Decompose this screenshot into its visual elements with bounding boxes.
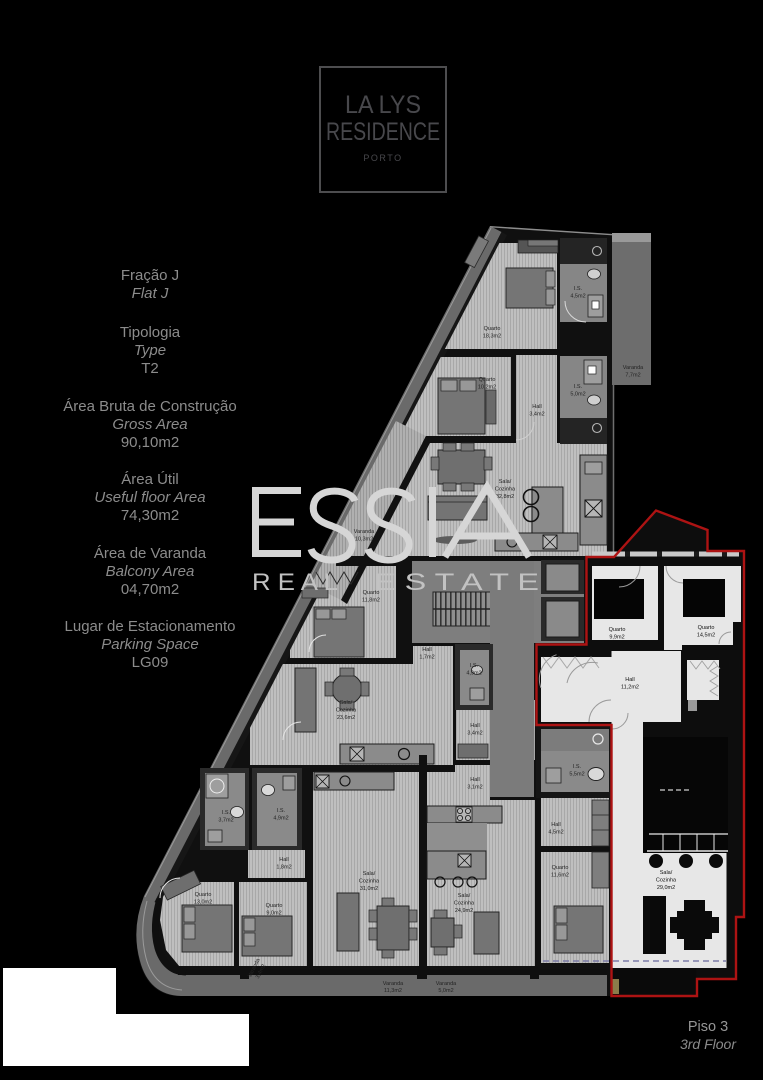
svg-text:Cozinha: Cozinha <box>495 487 516 493</box>
svg-text:4,9m2: 4,9m2 <box>466 671 481 677</box>
svg-text:Cozinha: Cozinha <box>336 708 357 714</box>
svg-text:I.S.: I.S. <box>574 286 583 292</box>
svg-text:Cozinha: Cozinha <box>656 878 677 884</box>
svg-text:Quarto: Quarto <box>479 377 496 383</box>
svg-text:11,6m2: 11,6m2 <box>551 873 569 879</box>
svg-text:9,0m2: 9,0m2 <box>266 911 281 917</box>
svg-text:I.S.: I.S. <box>470 663 479 669</box>
svg-text:Hall: Hall <box>470 723 479 729</box>
svg-text:I.S.: I.S. <box>222 810 231 816</box>
svg-text:Cozinha: Cozinha <box>359 879 380 885</box>
svg-text:11,8m2: 11,8m2 <box>362 598 380 604</box>
svg-text:Área Bruta de Construção: Área Bruta de Construção <box>63 398 236 415</box>
svg-text:32,8m2: 32,8m2 <box>496 494 514 500</box>
svg-text:5,0m2: 5,0m2 <box>570 392 585 398</box>
svg-text:13,0m2: 13,0m2 <box>194 900 212 906</box>
svg-text:Cozinha: Cozinha <box>454 901 475 907</box>
svg-text:04,70m2: 04,70m2 <box>121 581 179 598</box>
svg-text:Varanda: Varanda <box>623 365 644 371</box>
svg-text:Varanda: Varanda <box>354 529 375 535</box>
svg-text:7,7m2: 7,7m2 <box>625 373 640 379</box>
svg-text:Varanda: Varanda <box>436 981 457 987</box>
svg-text:Balcony Area: Balcony Area <box>106 563 195 580</box>
svg-text:Quarto: Quarto <box>609 627 626 633</box>
svg-text:Hall: Hall <box>551 822 560 828</box>
svg-text:Lugar de Estacionamento: Lugar de Estacionamento <box>65 618 236 635</box>
svg-text:Varanda: Varanda <box>383 981 404 987</box>
svg-text:PORTO: PORTO <box>363 153 402 163</box>
svg-text:Hall: Hall <box>625 677 634 683</box>
svg-text:Sala/: Sala/ <box>499 479 512 485</box>
svg-text:Sala/: Sala/ <box>458 893 471 899</box>
svg-text:3,7m2: 3,7m2 <box>218 818 233 824</box>
svg-text:11,2m2: 11,2m2 <box>621 685 639 691</box>
svg-text:I.S.: I.S. <box>277 808 286 814</box>
svg-text:74,30m2: 74,30m2 <box>121 507 179 524</box>
svg-text:18,3m2: 18,3m2 <box>483 334 501 340</box>
svg-text:I.S.: I.S. <box>573 764 582 770</box>
svg-text:Piso 3: Piso 3 <box>688 1019 728 1035</box>
svg-text:Quarto: Quarto <box>195 892 212 898</box>
svg-text:Sala/: Sala/ <box>660 870 673 876</box>
svg-text:24,9m2: 24,9m2 <box>455 908 473 914</box>
svg-text:RESIDENCE: RESIDENCE <box>326 118 440 146</box>
svg-text:Useful floor Area: Useful floor Area <box>94 489 205 506</box>
svg-text:Hall: Hall <box>279 857 288 863</box>
svg-text:Parking Space: Parking Space <box>101 636 199 653</box>
svg-text:LG09: LG09 <box>132 654 169 671</box>
svg-text:9,9m2: 9,9m2 <box>609 635 624 641</box>
svg-text:4,5m2: 4,5m2 <box>548 830 563 836</box>
svg-text:14,5m2: 14,5m2 <box>697 633 715 639</box>
svg-text:10,2m2: 10,2m2 <box>478 385 496 391</box>
svg-text:Type: Type <box>134 342 166 359</box>
svg-text:11,3m2: 11,3m2 <box>384 988 402 994</box>
svg-text:29,0m2: 29,0m2 <box>657 885 675 891</box>
svg-text:3,4m2: 3,4m2 <box>467 731 482 737</box>
svg-text:Sala/: Sala/ <box>363 871 376 877</box>
svg-text:90,10m2: 90,10m2 <box>121 434 179 451</box>
svg-text:LA LYS: LA LYS <box>345 91 421 119</box>
svg-text:Sala/: Sala/ <box>340 700 353 706</box>
svg-text:5,5m2: 5,5m2 <box>569 772 584 778</box>
svg-text:31,0m2: 31,0m2 <box>360 886 378 892</box>
svg-text:Fração J: Fração J <box>121 267 179 284</box>
svg-text:T2: T2 <box>141 360 159 377</box>
svg-text:I.S.: I.S. <box>574 384 583 390</box>
svg-text:Hall: Hall <box>532 404 541 410</box>
svg-text:Gross Area: Gross Area <box>112 416 187 433</box>
svg-text:Quarto: Quarto <box>552 865 569 871</box>
svg-text:R E A L: R E A L <box>252 569 338 596</box>
svg-text:3rd Floor: 3rd Floor <box>680 1036 737 1052</box>
svg-text:Área Útil: Área Útil <box>121 471 179 488</box>
svg-text:Hall: Hall <box>470 777 479 783</box>
svg-text:1,8m2: 1,8m2 <box>276 865 291 871</box>
svg-text:E S T A T E: E S T A T E <box>374 569 539 596</box>
svg-text:Quarto: Quarto <box>266 903 283 909</box>
svg-text:3,4m2: 3,4m2 <box>529 412 544 418</box>
svg-text:Quarto: Quarto <box>484 326 501 332</box>
svg-text:3,1m2: 3,1m2 <box>467 785 482 791</box>
svg-text:23,6m2: 23,6m2 <box>337 715 355 721</box>
svg-text:Flat J: Flat J <box>132 285 169 302</box>
svg-text:10,3m2: 10,3m2 <box>355 537 373 543</box>
svg-text:Quarto: Quarto <box>698 625 715 631</box>
svg-text:Área de Varanda: Área de Varanda <box>94 545 207 562</box>
svg-text:Hall: Hall <box>422 647 431 653</box>
svg-text:5,0m2: 5,0m2 <box>438 988 453 994</box>
svg-text:4,5m2: 4,5m2 <box>570 294 585 300</box>
svg-text:4,9m2: 4,9m2 <box>273 816 288 822</box>
svg-text:1,7m2: 1,7m2 <box>419 655 434 661</box>
svg-text:Tipologia: Tipologia <box>120 324 181 341</box>
